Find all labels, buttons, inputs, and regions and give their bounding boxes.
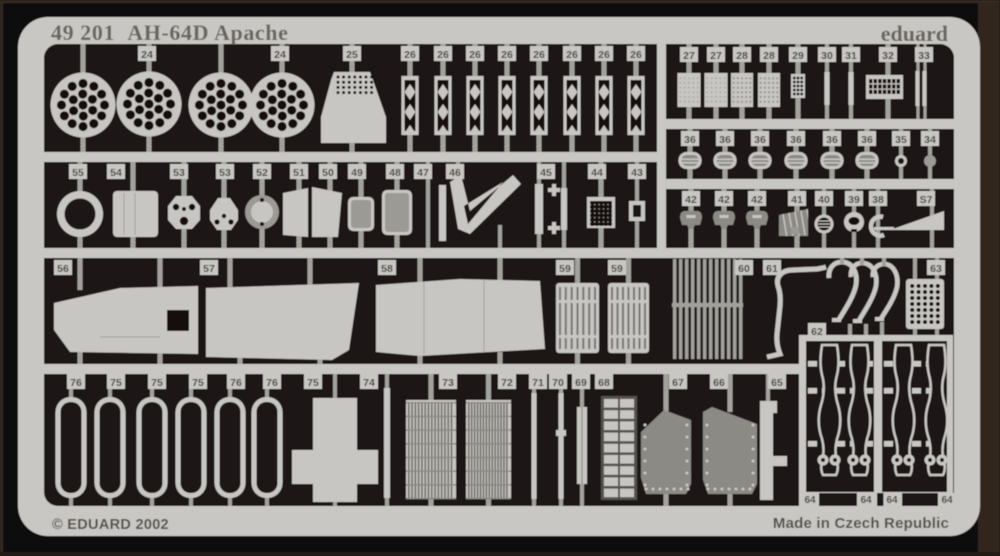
svg-text:64: 64: [886, 495, 898, 506]
svg-text:53: 53: [173, 167, 185, 179]
svg-text:25: 25: [346, 49, 358, 61]
svg-text:59: 59: [611, 263, 623, 275]
svg-text:57: 57: [203, 263, 215, 275]
svg-text:26: 26: [598, 49, 610, 61]
svg-text:45: 45: [540, 167, 552, 179]
svg-text:70: 70: [552, 377, 564, 389]
svg-text:52: 52: [256, 167, 268, 179]
svg-text:54: 54: [110, 167, 122, 179]
svg-text:63: 63: [930, 263, 942, 275]
svg-text:61: 61: [766, 263, 778, 275]
svg-text:67: 67: [672, 377, 684, 389]
svg-text:40: 40: [818, 194, 830, 206]
svg-text:S7: S7: [920, 194, 933, 206]
svg-text:28: 28: [763, 50, 775, 62]
svg-text:24: 24: [274, 49, 286, 61]
svg-text:50: 50: [322, 167, 334, 179]
svg-text:© EDUARD 2002: © EDUARD 2002: [52, 517, 169, 533]
svg-text:42: 42: [751, 194, 763, 206]
svg-text:76: 76: [230, 377, 242, 389]
svg-text:69: 69: [575, 377, 587, 389]
svg-text:26: 26: [404, 49, 416, 61]
svg-text:35: 35: [895, 134, 907, 146]
svg-text:56: 56: [57, 263, 69, 275]
svg-text:76: 76: [70, 377, 82, 389]
svg-text:42: 42: [718, 194, 730, 206]
svg-text:27: 27: [710, 50, 722, 62]
svg-text:32: 32: [882, 50, 894, 62]
svg-text:36: 36: [719, 134, 731, 146]
svg-text:38: 38: [872, 194, 884, 206]
svg-text:49 201 AH-64D Apache: 49 201 AH-64D Apache: [51, 20, 289, 45]
svg-text:27: 27: [683, 50, 695, 62]
svg-text:30: 30: [821, 50, 833, 62]
svg-text:26: 26: [501, 49, 513, 61]
svg-text:26: 26: [566, 49, 578, 61]
svg-text:60: 60: [738, 263, 750, 275]
svg-text:48: 48: [389, 167, 401, 179]
svg-text:74: 74: [363, 377, 375, 389]
svg-text:73: 73: [442, 377, 454, 389]
svg-text:24: 24: [141, 49, 153, 61]
svg-text:41: 41: [791, 194, 803, 206]
svg-text:36: 36: [861, 134, 873, 146]
svg-text:75: 75: [307, 377, 319, 389]
svg-text:43: 43: [631, 167, 643, 179]
svg-text:75: 75: [110, 377, 122, 389]
svg-text:75: 75: [151, 377, 163, 389]
svg-text:26: 26: [437, 49, 449, 61]
svg-text:72: 72: [501, 377, 513, 389]
svg-text:42: 42: [685, 194, 697, 206]
svg-text:26: 26: [533, 49, 545, 61]
svg-text:28: 28: [736, 50, 748, 62]
svg-text:26: 26: [630, 49, 642, 61]
svg-text:36: 36: [754, 134, 766, 146]
svg-text:58: 58: [381, 263, 393, 275]
svg-text:55: 55: [72, 167, 84, 179]
svg-text:31: 31: [845, 50, 857, 62]
svg-text:64: 64: [804, 495, 816, 506]
svg-text:49: 49: [351, 167, 363, 179]
svg-text:26: 26: [469, 49, 481, 61]
svg-text:64: 64: [941, 495, 953, 506]
svg-text:36: 36: [826, 134, 838, 146]
svg-text:Made in Czech Republic: Made in Czech Republic: [773, 515, 949, 532]
svg-text:36: 36: [790, 134, 802, 146]
svg-text:29: 29: [792, 50, 804, 62]
svg-text:75: 75: [192, 377, 204, 389]
svg-text:33: 33: [918, 50, 930, 62]
svg-text:68: 68: [598, 377, 610, 389]
svg-text:34: 34: [924, 134, 936, 146]
svg-text:76: 76: [266, 377, 278, 389]
svg-text:46: 46: [449, 167, 461, 179]
svg-text:36: 36: [684, 134, 696, 146]
svg-text:39: 39: [848, 194, 860, 206]
svg-text:53: 53: [219, 167, 231, 179]
svg-text:51: 51: [293, 167, 305, 179]
svg-text:64: 64: [860, 495, 872, 506]
svg-text:eduard: eduard: [881, 21, 948, 46]
svg-text:59: 59: [559, 263, 571, 275]
svg-text:47: 47: [417, 167, 429, 179]
svg-text:66: 66: [713, 377, 725, 389]
svg-text:44: 44: [591, 167, 603, 179]
svg-text:65: 65: [771, 377, 783, 389]
svg-text:71: 71: [532, 377, 544, 389]
